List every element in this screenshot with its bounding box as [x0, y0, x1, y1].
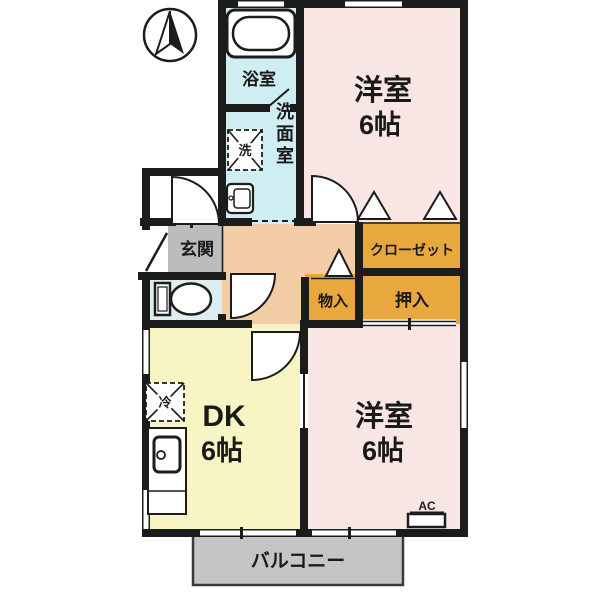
window [345, 2, 402, 7]
wall-tick [348, 527, 351, 539]
wall-segment [138, 272, 226, 280]
toilet-tank-icon [158, 287, 167, 311]
wall-segment [218, 0, 226, 226]
wall-tick [408, 318, 411, 330]
bathroom-label: 浴室 [242, 69, 276, 89]
wall-segment [296, 0, 304, 226]
north-compass-icon [144, 9, 196, 61]
wall-segment [142, 320, 252, 328]
ac-label: AC [418, 499, 436, 513]
wall-segment [355, 222, 363, 326]
fridge-symbol: 冷 [158, 395, 171, 410]
entrance-label: 玄関 [180, 239, 214, 259]
wall-tick [428, 0, 431, 8]
hallway-door-swing [172, 177, 219, 224]
sliding-door [312, 531, 396, 536]
bedroom-bottom-name: 洋室 [355, 399, 413, 433]
wall-segment [300, 320, 363, 328]
washer-symbol: 洗 [238, 143, 251, 158]
sliding-door [200, 531, 296, 536]
wall-segment [140, 218, 176, 226]
floor-plan-svg: 浴室 洗 洗面室 洋室 6帖 玄関 クローゼット 物入 押入 DK 6帖 冷 洋… [0, 0, 600, 600]
bedroom-bottom-size: 6帖 [362, 436, 404, 466]
vanity-sink-icon [234, 189, 250, 208]
window [462, 362, 467, 428]
wall-segment [218, 218, 252, 226]
wall-segment [222, 104, 270, 112]
bathtub-icon [233, 17, 289, 50]
floor-plan-page: 浴室 洗 洗面室 洋室 6帖 玄関 クローゼット 物入 押入 DK 6帖 冷 洋… [0, 0, 600, 600]
vanity-faucet-icon [229, 196, 233, 200]
dk-size: 6帖 [201, 436, 243, 466]
kitchen-faucet-icon [157, 451, 165, 459]
wall-segment [142, 529, 468, 537]
window [238, 2, 284, 7]
toilet-bowl-icon [171, 284, 211, 315]
bedroom-top-name: 洋室 [354, 73, 412, 107]
wall-segment [300, 320, 308, 374]
wall-tick [240, 527, 243, 539]
balcony-label: バルコニー [251, 550, 346, 572]
window [144, 330, 149, 374]
closet-label: クローゼット [370, 242, 454, 258]
wall-segment [355, 268, 464, 276]
bedroom-top-size: 6帖 [359, 110, 401, 140]
oshiire-label: 押入 [395, 290, 429, 310]
wall-segment [300, 428, 308, 529]
ac-unit-icon [408, 514, 445, 527]
storage-label: 物入 [318, 292, 348, 310]
wall-segment [142, 168, 226, 176]
room-divider-line [303, 374, 305, 428]
dk-name: DK [202, 400, 246, 433]
washroom-label: 洗面室 [274, 101, 294, 168]
